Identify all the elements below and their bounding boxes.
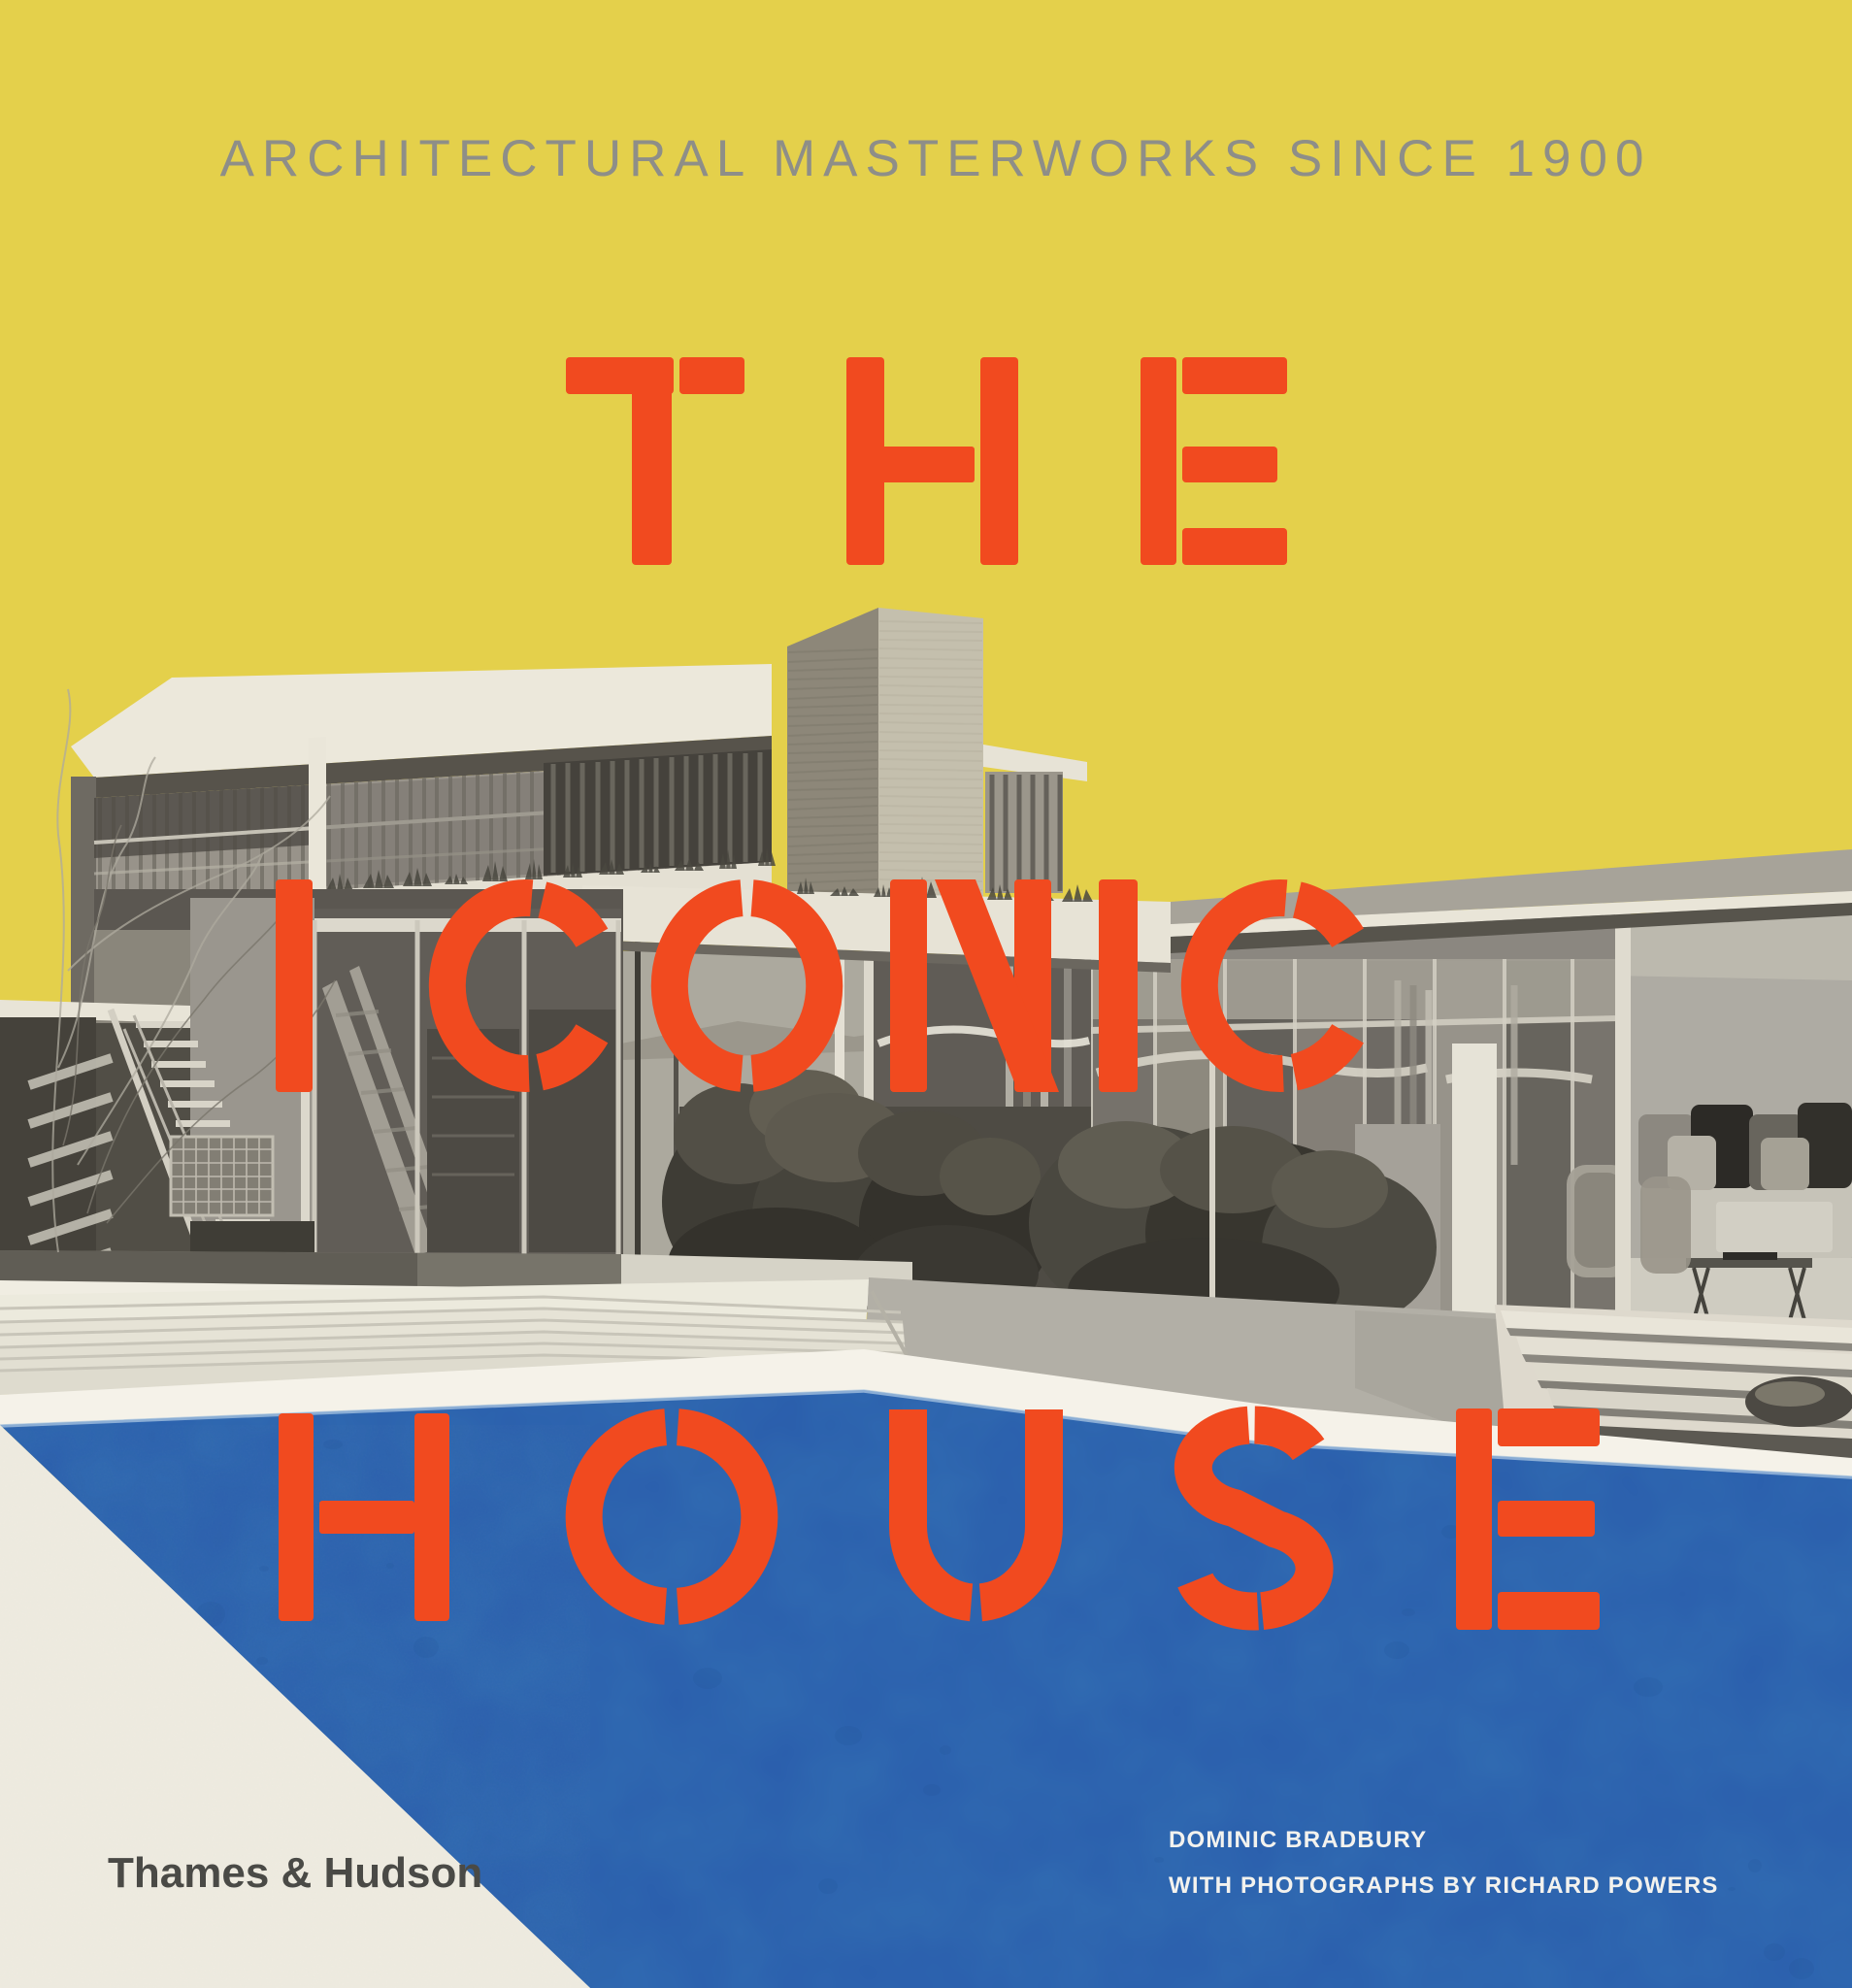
svg-text:WITH PHOTOGRAPHS BY RICHARD PO: WITH PHOTOGRAPHS BY RICHARD POWERS [1169,1872,1719,1899]
svg-text:DOMINIC BRADBURY: DOMINIC BRADBURY [1169,1827,1427,1853]
svg-text:ARCHITECTURAL MASTERWORKS SINC: ARCHITECTURAL MASTERWORKS SINCE 1900 [220,130,1652,187]
svg-text:Thames & Hudson: Thames & Hudson [108,1849,482,1897]
